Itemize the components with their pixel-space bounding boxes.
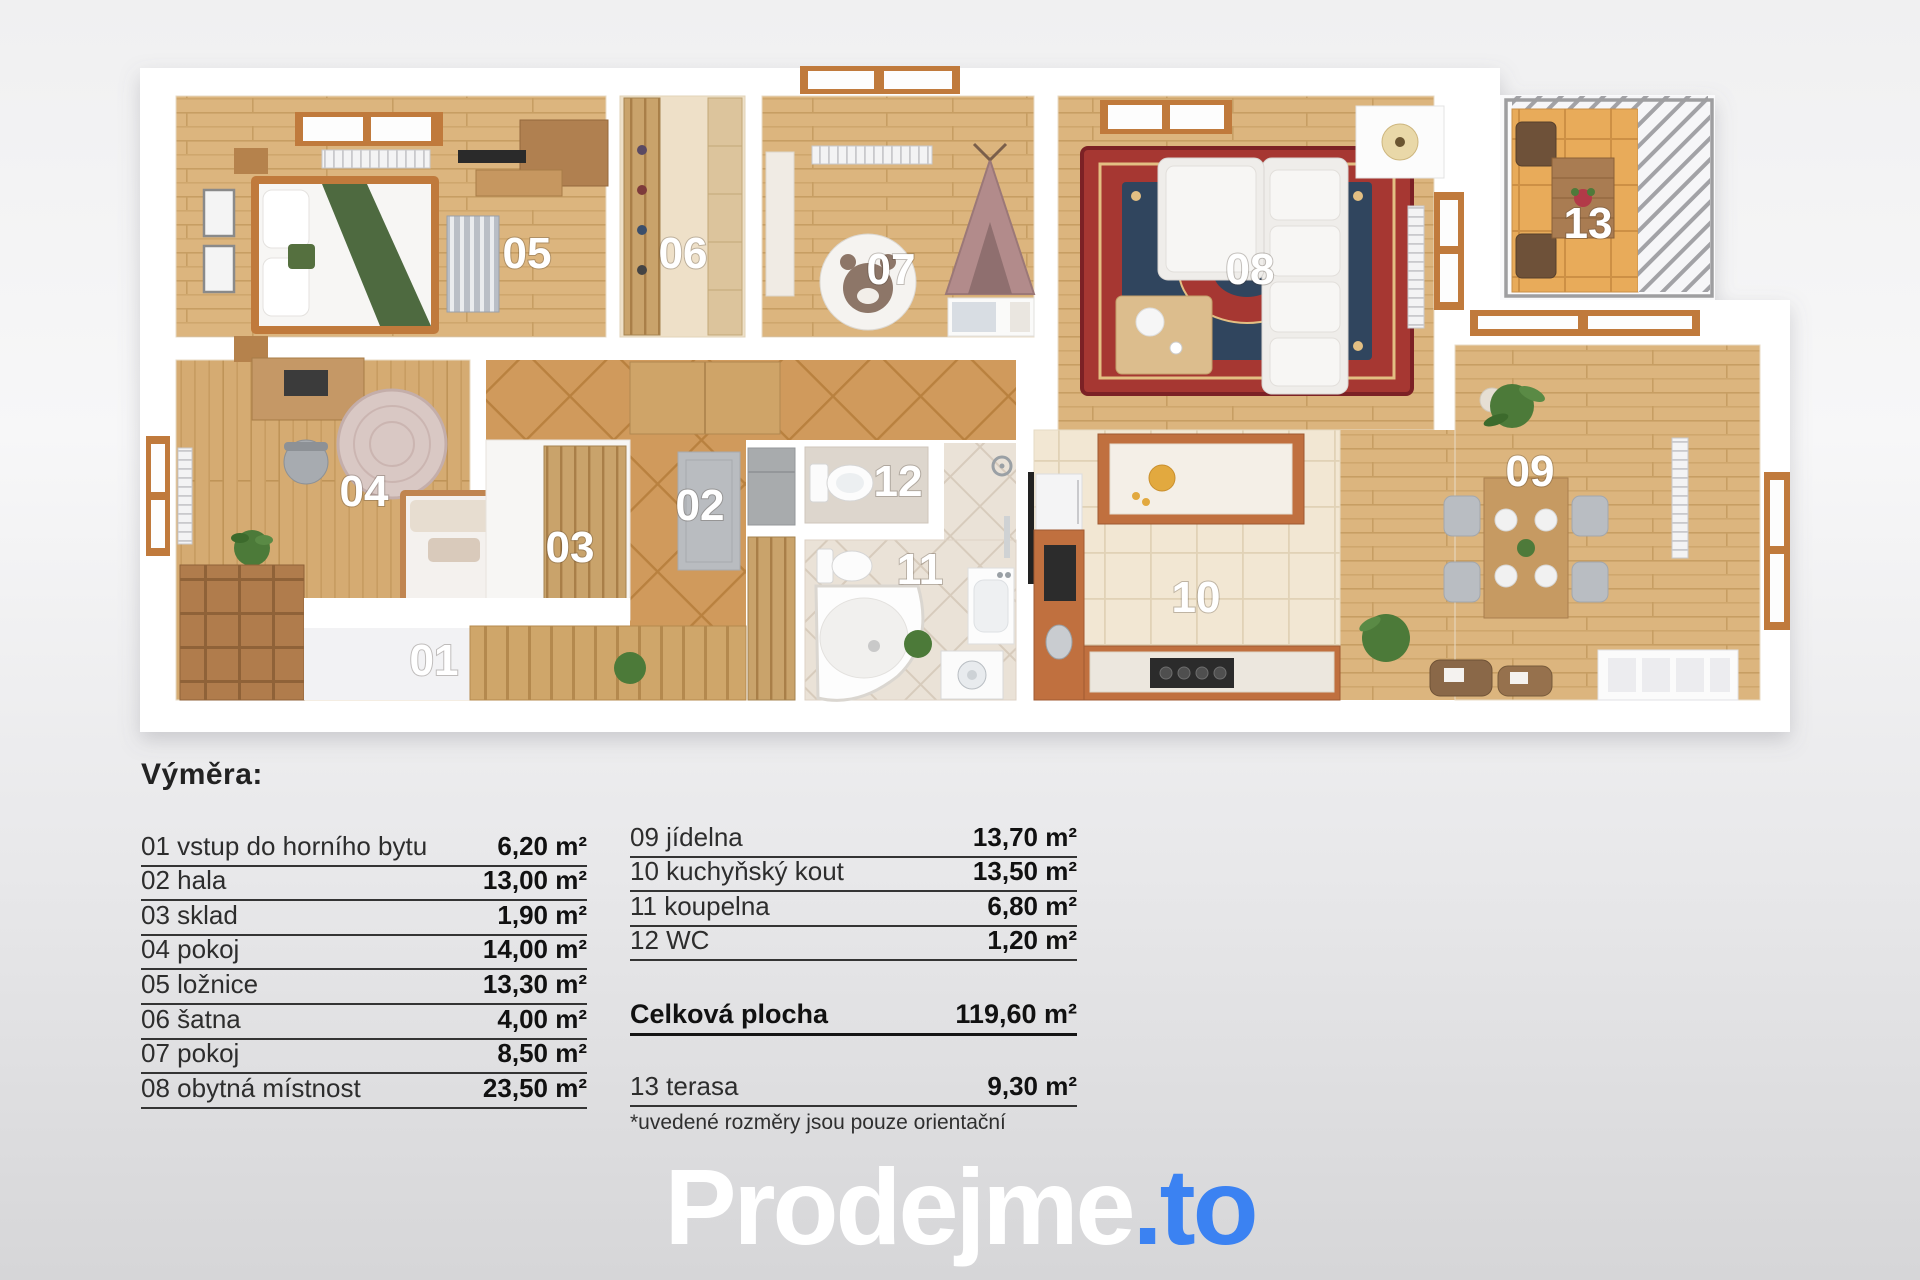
stairs <box>470 626 746 700</box>
coffee-table <box>1116 296 1212 374</box>
room-name: 04 pokoj <box>141 934 239 965</box>
room-name: 09 jídelna <box>630 822 743 853</box>
tall-wardrobe <box>748 537 795 700</box>
legend-row: 09 jídelna13,70 m² <box>630 823 1077 858</box>
room-name: 02 hala <box>141 865 226 896</box>
chair <box>1444 496 1480 536</box>
radiator <box>812 146 932 164</box>
legend-footnote: *uvedené rozměry jsou pouze orientační <box>630 1111 1006 1135</box>
legend-row: 04 pokoj14,00 m² <box>141 936 587 971</box>
kitchen-island <box>1098 434 1304 524</box>
room-label-07: 07 <box>867 245 916 294</box>
legend-right-column: 09 jídelna13,70 m² 10 kuchyňský kout13,5… <box>630 823 1077 961</box>
picture-frame <box>204 246 234 292</box>
legend-row: 02 hala13,00 m² <box>141 867 587 902</box>
room-name: 11 koupelna <box>630 891 770 922</box>
room-label-01: 01 <box>410 636 459 685</box>
room-name: 08 obytná místnost <box>141 1073 361 1104</box>
legend-left-column: 01 vstup do horního bytu6,20 m² 02 hala1… <box>141 832 587 1109</box>
open-floor-strip <box>1340 430 1455 700</box>
room-label-11: 11 <box>897 545 944 594</box>
tv <box>1028 472 1034 584</box>
legend-row: 10 kuchyňský kout13,50 m² <box>630 858 1077 893</box>
chair <box>1572 562 1608 602</box>
striped-rug <box>447 216 499 312</box>
room-area: 13,30 m² <box>483 969 587 1000</box>
toilet-tank <box>810 464 828 502</box>
centerpiece <box>1517 539 1535 557</box>
brand-logo: Prodejme.to <box>0 1150 1920 1263</box>
room-label-06: 06 <box>659 229 708 278</box>
room-name: 12 WC <box>630 925 709 956</box>
shelf <box>766 152 794 296</box>
room-area: 1,90 m² <box>497 900 587 931</box>
room-label-10: 10 <box>1172 573 1221 622</box>
books <box>1510 672 1528 684</box>
chair <box>1444 562 1480 602</box>
picture-frame <box>204 190 234 236</box>
shelf <box>476 170 562 196</box>
room-area: 13,50 m² <box>973 856 1077 887</box>
room-label-12: 12 <box>874 457 923 506</box>
oven <box>1044 545 1076 601</box>
room-name: 06 šatna <box>141 1004 241 1035</box>
room-area: 23,50 m² <box>483 1073 587 1104</box>
legend-title: Výměra: <box>141 758 263 792</box>
room-area: 9,30 m² <box>987 1071 1077 1102</box>
room-name: 05 ložnice <box>141 969 258 1000</box>
radiator <box>322 150 430 168</box>
radiator <box>1672 438 1688 558</box>
toilet-tank <box>817 549 833 583</box>
room-area: 8,50 m² <box>497 1038 587 1069</box>
legend-row: 11 koupelna6,80 m² <box>630 892 1077 927</box>
nightstand <box>234 148 268 174</box>
legend-row: 01 vstup do horního bytu6,20 m² <box>141 832 587 867</box>
legend-row: 07 pokoj8,50 m² <box>141 1040 587 1075</box>
bookshelf <box>180 565 304 700</box>
monitor <box>284 370 328 396</box>
corner-sink <box>1046 625 1072 659</box>
room-name: 13 terasa <box>630 1071 738 1102</box>
room-area: 6,80 m² <box>987 891 1077 922</box>
towel-rail <box>1004 516 1010 558</box>
books <box>1444 668 1464 682</box>
room-area: 13,70 m² <box>973 822 1077 853</box>
legend-terrace-row: 13 terasa 9,30 m² <box>630 1071 1077 1107</box>
room-area: 13,00 m² <box>483 865 587 896</box>
room-name: 10 kuchyňský kout <box>630 856 844 887</box>
tv <box>458 150 526 163</box>
room-label-08: 08 <box>1226 245 1275 294</box>
room-label-04: 04 <box>340 467 389 516</box>
radiator <box>1408 206 1424 328</box>
room-label-13: 13 <box>1564 199 1613 248</box>
room-12-furniture <box>810 464 873 502</box>
logo-text-primary: Prodejme <box>664 1146 1132 1267</box>
legend-row: 03 sklad1,90 m² <box>141 901 587 936</box>
kids-bed <box>948 298 1034 336</box>
toilet-bowl <box>832 551 872 581</box>
room-label-02: 02 <box>676 481 725 530</box>
room-label-09: 09 <box>1506 447 1555 496</box>
radiator <box>178 448 192 544</box>
room-label-03: 03 <box>546 523 595 572</box>
room-terrace <box>1506 96 1712 296</box>
wardrobe-right <box>708 98 742 335</box>
niche <box>748 448 795 525</box>
legend-row: 08 obytná místnost23,50 m² <box>141 1074 587 1109</box>
plant <box>904 630 932 658</box>
fridge <box>1036 474 1082 530</box>
terrace-chair <box>1516 122 1556 166</box>
room-label-05: 05 <box>503 229 552 278</box>
chair <box>1572 496 1608 536</box>
plant <box>614 652 646 684</box>
room-area: 14,00 m² <box>483 934 587 965</box>
room-area: 6,20 m² <box>497 831 587 862</box>
room-name: 07 pokoj <box>141 1038 239 1069</box>
total-label: Celková plocha <box>630 999 828 1030</box>
total-value: 119,60 m² <box>955 999 1077 1030</box>
fruit-bowl <box>1149 465 1175 491</box>
room-name: 03 sklad <box>141 900 238 931</box>
terrace-chair <box>1516 234 1556 278</box>
bed-double <box>251 176 439 334</box>
wall-band <box>304 598 630 628</box>
room-name: 01 vstup do horního bytu <box>141 831 427 862</box>
logo-text-accent: .to <box>1133 1146 1256 1267</box>
legend-total-row: Celková plocha 119,60 m² <box>630 1000 1077 1036</box>
legend-row: 06 šatna4,00 m² <box>141 1005 587 1040</box>
wardrobe-left <box>624 98 660 335</box>
legend-row: 05 ložnice13,30 m² <box>141 970 587 1005</box>
room-area: 1,20 m² <box>987 925 1077 956</box>
legend-row: 12 WC1,20 m² <box>630 927 1077 962</box>
room-area: 4,00 m² <box>497 1004 587 1035</box>
